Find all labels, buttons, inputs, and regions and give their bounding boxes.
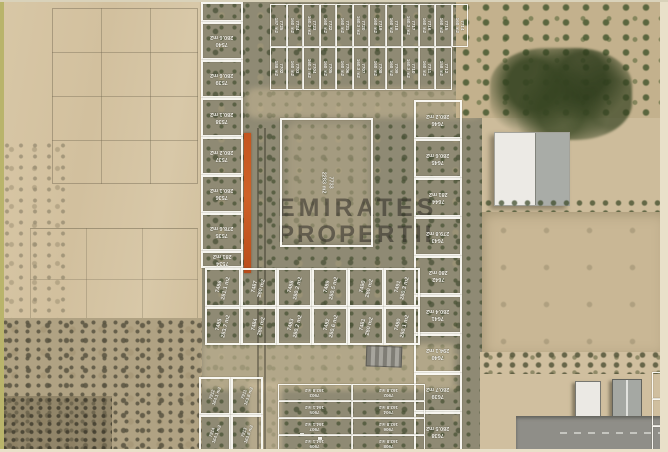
plot-label: 7711160 m2 — [421, 61, 432, 76]
plot-cell: 7716160 m2 — [419, 4, 436, 47]
plot-label: 7708160 m2 — [372, 61, 383, 76]
plot-overlays: 7540280.6 m27539280.6 m27538280.1 m27537… — [0, 0, 668, 452]
plot-cell: 7710160.3 m2 — [402, 47, 419, 90]
plot-number: 7715 — [443, 18, 448, 33]
plot-label: 7725187 m2 — [273, 18, 284, 33]
plot-number: 7710 — [410, 59, 415, 78]
plot-number: 7704 — [311, 59, 316, 78]
plot-cell: 7711160 m2 — [419, 47, 436, 90]
plot-area: 163.8 m2 — [244, 387, 256, 407]
plot-label: 7488280.2 m2 — [285, 274, 303, 300]
plot-area: 280.5 m2 — [327, 276, 339, 300]
plot-cell: 7717160.3 m2 — [402, 4, 419, 47]
plot-label: 7487280 m2 — [250, 277, 267, 298]
plot-area: 163.8 m2 — [305, 387, 324, 392]
plot-area: 160.3 m2 — [405, 59, 410, 78]
plot-area: 160 m2 — [421, 18, 426, 33]
plot-area: 164.1 m2 — [305, 438, 324, 443]
plot-number: 7906 — [379, 427, 398, 432]
plot-number: 7719 — [377, 18, 382, 33]
plot-area: 280 m2 — [364, 317, 375, 337]
plot-cell: 7702188 m2 — [270, 47, 287, 90]
plot-area: 163.8 m2 — [379, 404, 398, 409]
plot-number: 7733 — [327, 172, 334, 194]
plot-area: 160 m2 — [322, 61, 327, 76]
plot-area: 160 m2 — [421, 61, 426, 76]
plot-number: 7912 — [207, 385, 219, 405]
plot-area: 188 m2 — [273, 61, 278, 76]
plot-number: 7643 — [426, 237, 449, 244]
plot-cell: 7483280.2 m2 — [277, 307, 313, 346]
plot-cell: 7715160 m2 — [435, 4, 452, 47]
plot-number: 7487 — [250, 277, 261, 297]
plot-cell: 7491280.3 m2 — [384, 268, 420, 307]
plot-cell: 7486281.1 m2 — [205, 268, 241, 307]
plot-number: 7907 — [305, 427, 324, 432]
plot-label: 7536280.1 m2 — [210, 187, 233, 200]
plot-cell: 7703160 m2 — [287, 47, 304, 90]
plot-area: 160 m2 — [289, 18, 294, 33]
plot-area: 280.3 m2 — [399, 276, 411, 300]
plot-number: 7640 — [426, 354, 449, 361]
plot-number: 7486 — [214, 274, 226, 298]
plot-area: 164.1 m2 — [305, 404, 324, 409]
plot-number: 7488 — [285, 274, 297, 298]
plot-area: 280 m2 — [256, 317, 267, 337]
plot-cell: 7911163.8 m2 — [231, 377, 263, 415]
plot-cell — [201, 2, 243, 22]
plot-number: 7702 — [278, 61, 283, 76]
plot-number: 7537 — [210, 156, 233, 163]
plot-area: 160.3 m2 — [355, 59, 360, 78]
plot-area: 160.3 m2 — [306, 16, 311, 35]
plot-area: 160 m2 — [372, 18, 377, 33]
plot-cell: 7490280 m2 — [348, 268, 384, 307]
plot-number: 7903 — [305, 393, 324, 398]
plot-cell: 7540280.6 m2 — [201, 22, 243, 60]
plot-number: 7490 — [357, 277, 368, 297]
plot-area: 294.1 m2 — [426, 347, 449, 354]
plot-label: 7537280.2 m2 — [210, 149, 233, 162]
plot-cell: 7706160 m2 — [336, 47, 353, 90]
plot-label: 7714160 m2 — [454, 18, 465, 33]
plot-number: 7708 — [377, 61, 382, 76]
plot-number: 7722 — [328, 18, 333, 33]
plot-area: 280.6 m2 — [210, 72, 233, 79]
plot-label: 7718160 m2 — [388, 18, 399, 33]
plot-number: 7540 — [210, 41, 233, 48]
plot-area: 280 m2 — [364, 278, 375, 298]
plot-label: 7485283.7 m2 — [214, 313, 232, 339]
plot-number: 7725 — [278, 18, 283, 33]
plot-cell: 7535278.6 m2 — [201, 213, 243, 251]
plot-label: 7539280.6 m2 — [210, 72, 233, 85]
plot-cell: 7538280.1 m2 — [201, 98, 243, 137]
plot-cell: 7705160 m2 — [320, 47, 337, 90]
plot-cell: 7721160 m2 — [336, 4, 353, 47]
plot-cell: 7642280 m2 — [414, 256, 462, 295]
plot-label: 7720160.3 m2 — [355, 16, 366, 35]
plot-number: 7642 — [429, 276, 448, 283]
plot-number: 7705 — [328, 61, 333, 76]
plot-area: 280 m2 — [256, 278, 267, 298]
plot-number: 7646 — [426, 120, 449, 127]
plot-number: 7645 — [426, 159, 449, 166]
plot-area: 280.6 m2 — [210, 34, 233, 41]
plot-label: 7480280.1 m2 — [393, 313, 411, 339]
plot-label: 7641280.4 m2 — [426, 308, 449, 321]
plot-number: 7914 — [207, 422, 219, 442]
plot-cell: 7709160 m2 — [386, 47, 403, 90]
plot-area: 163.8 m2 — [379, 387, 398, 392]
plot-label: 7904163.8 m2 — [379, 404, 398, 415]
plot-area: 160.3 m2 — [405, 16, 410, 35]
plot-area: 160.3 m2 — [355, 16, 360, 35]
plot-area: 280.7 m2 — [426, 386, 449, 393]
plot-label: 7484280 m2 — [250, 315, 267, 336]
plot-cell: 77332283 m2 — [280, 118, 373, 247]
satellite-plot-map: EMIRATES PROPERTIE 7540280.6 m27539280.6… — [0, 0, 668, 452]
plot-cell: 7722160 m2 — [320, 4, 337, 47]
plot-number: 7480 — [393, 313, 405, 337]
plot-label: 7491280.3 m2 — [393, 274, 411, 300]
plot-area: 160 m2 — [388, 18, 393, 33]
plot-cell: 7537280.2 m2 — [201, 137, 243, 175]
plot-label: 7645280.6 m2 — [426, 152, 449, 165]
plot-area: 280.2 m2 — [292, 314, 304, 338]
plot-area: 280.2 m2 — [426, 113, 449, 120]
plot-label: 7482280.6 m2 — [321, 313, 339, 339]
plot-number: 7703 — [295, 61, 300, 76]
plot-number: 7717 — [410, 16, 415, 35]
plot-label: 7911163.8 m2 — [239, 385, 256, 407]
plot-label: 7909164.1 m2 — [305, 438, 324, 449]
plot-label: 7705160 m2 — [322, 61, 333, 76]
plot-cell: 7907164.1 m2 — [278, 418, 352, 435]
plot-area: 158 m2 — [438, 61, 443, 76]
plot-label: 7644281 m2 — [429, 191, 448, 204]
plot-cell: 7641280.4 m2 — [414, 295, 462, 334]
plot-cell: 7482280.6 m2 — [312, 307, 348, 346]
plot-label: 7724160 m2 — [289, 18, 300, 33]
plot-cell: 7905164.1 m2 — [278, 401, 352, 418]
plot-number: 7714 — [460, 18, 465, 33]
plot-area: 160 m2 — [322, 18, 327, 33]
plot-cell: 7719160 m2 — [369, 4, 386, 47]
plot-label: 7721160 m2 — [339, 18, 350, 33]
plot-cell: 7489280.5 m2 — [312, 268, 348, 307]
plot-area: 280.6 m2 — [327, 314, 339, 338]
plot-cell: 7488280.2 m2 — [277, 268, 313, 307]
plot-number: 7484 — [250, 315, 261, 335]
plot-area: 187 m2 — [273, 18, 278, 33]
plot-number: 7536 — [210, 194, 233, 201]
plot-cell: 7902163.8 m2 — [352, 384, 426, 401]
plot-label: 7902163.8 m2 — [379, 387, 398, 398]
plot-label: 7643279.8 m2 — [426, 230, 449, 243]
plot-label: 7702188 m2 — [273, 61, 284, 76]
plot-area: 280.4 m2 — [426, 308, 449, 315]
plot-label: 7703160 m2 — [289, 61, 300, 76]
plot-number: 7724 — [295, 18, 300, 33]
plot-label: 7908163.8 m2 — [379, 438, 398, 449]
plot-label: 7483280.2 m2 — [285, 313, 303, 339]
plot-cell: 7645280.6 m2 — [414, 139, 462, 178]
plot-label: 7712158 m2 — [438, 61, 449, 76]
plot-label: 7707160.3 m2 — [355, 59, 366, 78]
plot-label: 7489280.5 m2 — [321, 274, 339, 300]
plot-number: 7485 — [214, 313, 226, 337]
plot-label: 7481280 m2 — [357, 315, 374, 336]
plot-cell: 7643279.8 m2 — [414, 217, 462, 256]
plot-cell: 7718160 m2 — [386, 4, 403, 47]
plot-number: 7718 — [394, 18, 399, 33]
plot-label: 7914164.1 m2 — [207, 422, 224, 444]
plot-area: 164.1 m2 — [212, 387, 224, 407]
plot-area: 280.1 m2 — [210, 187, 233, 194]
plot-number: 7481 — [357, 315, 368, 335]
plot-number: 7905 — [305, 410, 324, 415]
plot-cell: 7536280.1 m2 — [201, 175, 243, 213]
plot-number: 7534 — [213, 260, 232, 267]
plot-cell: 7725187 m2 — [270, 4, 287, 47]
plot-label: 7722160 m2 — [322, 18, 333, 33]
plot-cell: 7484280 m2 — [241, 307, 277, 346]
plot-label: 7913163.8 m2 — [239, 422, 256, 444]
plot-area: 160 m2 — [289, 61, 294, 76]
plot-number: 7539 — [210, 79, 233, 86]
plot-number: 7720 — [361, 16, 366, 35]
plot-label: 7906163.8 m2 — [379, 421, 398, 432]
plot-cell: 7481280 m2 — [348, 307, 384, 346]
plot-area: 164.1 m2 — [305, 421, 324, 426]
plot-number: 7711 — [427, 61, 432, 76]
plot-number: 7482 — [321, 313, 333, 337]
plot-cell: 7723160.3 m2 — [303, 4, 320, 47]
plot-number: 7902 — [379, 393, 398, 398]
plot-label: 7719160 m2 — [372, 18, 383, 33]
plot-label: 7490280 m2 — [357, 277, 374, 298]
plot-area: 160.3 m2 — [306, 59, 311, 78]
plot-number: 7538 — [210, 118, 233, 125]
plot-number: 7913 — [239, 422, 251, 442]
plot-cell: 7712158 m2 — [435, 47, 452, 90]
plot-label: 7710160.3 m2 — [405, 59, 416, 78]
plot-number: 7644 — [429, 198, 448, 205]
plot-cell: 7720160.3 m2 — [353, 4, 370, 47]
plot-cell: 7704160.3 m2 — [303, 47, 320, 90]
plot-area: 280.2 m2 — [292, 276, 304, 300]
plot-number: 7491 — [393, 274, 405, 298]
plot-area: 280.1 m2 — [210, 111, 233, 118]
plot-label: 77332283 m2 — [320, 172, 333, 194]
plot-cell: 7487280 m2 — [241, 268, 277, 307]
plot-area: 164.1 m2 — [212, 424, 224, 444]
plot-number: 7639 — [426, 393, 449, 400]
plot-cell: 7903163.8 m2 — [278, 384, 352, 401]
plot-label: 7535278.6 m2 — [210, 225, 233, 238]
plot-cell: 7714160 m2 — [452, 4, 469, 47]
plot-area: 280.1 m2 — [399, 314, 411, 338]
plot-label: 7716160 m2 — [421, 18, 432, 33]
plot-area: 163.8 m2 — [379, 421, 398, 426]
plot-cell: 7708160 m2 — [369, 47, 386, 90]
plot-cell: 7904163.8 m2 — [352, 401, 426, 418]
plot-number: 7911 — [239, 385, 251, 405]
plot-cell: 7640294.1 m2 — [414, 334, 462, 373]
plot-label: 7907164.1 m2 — [305, 421, 324, 432]
plot-number: 7483 — [285, 313, 297, 337]
plot-area: 280.2 m2 — [210, 149, 233, 156]
plot-label: 7706160 m2 — [339, 61, 350, 76]
plot-area: 279.8 m2 — [426, 230, 449, 237]
plot-label: 7642280 m2 — [429, 269, 448, 282]
plot-label: 7638280.5 m2 — [426, 425, 449, 438]
plot-label: 7717160.3 m2 — [405, 16, 416, 35]
plot-cell: 7724160 m2 — [287, 4, 304, 47]
plot-area: 281 m2 — [429, 191, 448, 198]
plot-area: 163.8 m2 — [244, 424, 256, 444]
plot-cell: 7646280.2 m2 — [414, 100, 462, 139]
plot-area: 160 m2 — [372, 61, 377, 76]
plot-number: 7641 — [426, 315, 449, 322]
plot-cell: 7480280.1 m2 — [384, 307, 420, 346]
plot-area: 160 m2 — [454, 18, 459, 33]
plot-label: 7903163.8 m2 — [305, 387, 324, 398]
plot-label: 7715160 m2 — [438, 18, 449, 33]
plot-label: 7723160.3 m2 — [306, 16, 317, 35]
plot-number: 7721 — [344, 18, 349, 33]
map-frame-border — [0, 0, 4, 452]
plot-area: 2283 m2 — [320, 172, 327, 194]
plot-number: 7712 — [443, 61, 448, 76]
plot-label: 7538280.1 m2 — [210, 111, 233, 124]
plot-label: 7646280.2 m2 — [426, 113, 449, 126]
plot-cell: 7539280.6 m2 — [201, 60, 243, 98]
plot-area: 160 m2 — [339, 61, 344, 76]
plot-cell: 7485283.7 m2 — [205, 307, 241, 346]
plot-label: 7540280.6 m2 — [210, 34, 233, 47]
plot-area: 278.6 m2 — [210, 225, 233, 232]
plot-label: 7912164.1 m2 — [207, 385, 224, 407]
plot-cell: 7644281 m2 — [414, 178, 462, 217]
plot-number: 7489 — [321, 274, 333, 298]
map-frame-border — [660, 0, 668, 452]
plot-cell: 7707160.3 m2 — [353, 47, 370, 90]
plot-cell: 7914164.1 m2 — [199, 415, 231, 452]
plot-label: 7709160 m2 — [388, 61, 399, 76]
plot-number: 7723 — [311, 16, 316, 35]
plot-number: 7707 — [361, 59, 366, 78]
plot-area: 160 m2 — [388, 61, 393, 76]
plot-number: 7716 — [427, 18, 432, 33]
plot-cell: 7906163.8 m2 — [352, 418, 426, 435]
plot-area: 280.6 m2 — [426, 152, 449, 159]
plot-area: 163.8 m2 — [379, 438, 398, 443]
plot-area: 281 m2 — [213, 253, 232, 260]
plot-label: 7486281.1 m2 — [214, 274, 232, 300]
plot-area: 160 m2 — [339, 18, 344, 33]
plot-label: 7639280.7 m2 — [426, 386, 449, 399]
plot-area: 280 m2 — [429, 269, 448, 276]
plot-cell: 7534281 m2 — [201, 251, 243, 268]
map-frame-border — [0, 0, 668, 2]
plot-area: 281.1 m2 — [220, 276, 232, 300]
plot-number: 7706 — [344, 61, 349, 76]
plot-cell: 7913163.8 m2 — [231, 415, 263, 452]
plot-number: 7709 — [394, 61, 399, 76]
plot-number: 7904 — [379, 410, 398, 415]
plot-area: 280.5 m2 — [426, 425, 449, 432]
plot-area: 283.7 m2 — [220, 314, 232, 338]
plot-label: 7640294.1 m2 — [426, 347, 449, 360]
plot-label: 7905164.1 m2 — [305, 404, 324, 415]
plot-number: 7535 — [210, 232, 233, 239]
plot-number: 7638 — [426, 432, 449, 439]
plot-cell: 7912164.1 m2 — [199, 377, 231, 415]
plot-label: 7704160.3 m2 — [306, 59, 317, 78]
plot-area: 160 m2 — [438, 18, 443, 33]
plot-label: 7534281 m2 — [213, 253, 232, 266]
